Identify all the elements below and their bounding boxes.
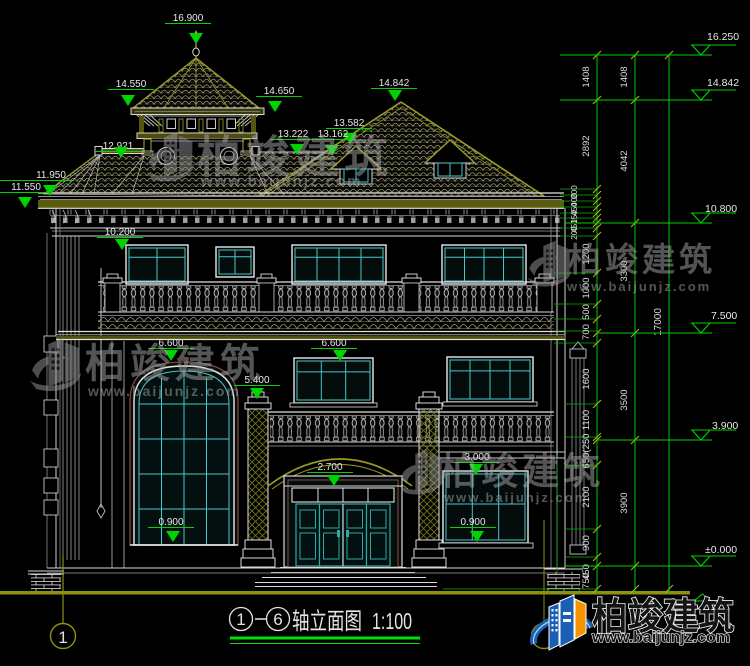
svg-text:2892: 2892 [581,135,592,156]
svg-text:www.baijunjz.com: www.baijunjz.com [443,490,588,505]
svg-text:14.842: 14.842 [707,77,739,89]
svg-text:7.500: 7.500 [711,310,737,322]
svg-text:1100: 1100 [581,410,592,430]
svg-text:14.842: 14.842 [379,78,410,89]
svg-text:11.550: 11.550 [11,182,41,193]
svg-text:1: 1 [236,610,245,629]
svg-text:10.200: 10.200 [105,227,136,238]
svg-text:轴立面图: 轴立面图 [292,608,362,634]
svg-text:www.baijunjz.com: www.baijunjz.com [591,630,730,646]
svg-text:17000: 17000 [653,308,664,336]
svg-text:3900: 3900 [619,492,630,513]
svg-text:www.baijunjz.com: www.baijunjz.com [566,279,711,294]
svg-text:www.baijunjz.com: www.baijunjz.com [87,383,241,399]
svg-text:www.baijunjz.com: www.baijunjz.com [200,173,362,190]
svg-text:11.950: 11.950 [36,170,66,181]
svg-text:900: 900 [581,535,592,551]
svg-text:0.900: 0.900 [460,517,485,528]
svg-text:6.600: 6.600 [321,338,346,349]
svg-text:0.900: 0.900 [158,517,183,528]
svg-text:2.700: 2.700 [317,462,342,473]
svg-text:1: 1 [58,628,67,647]
svg-text:4042: 4042 [619,150,630,171]
svg-text:3500: 3500 [619,389,630,410]
svg-text:16.900: 16.900 [173,13,204,24]
svg-text:6: 6 [273,610,282,629]
svg-text:柏竣建筑: 柏竣建筑 [568,241,716,278]
svg-text:±0.000: ±0.000 [705,544,737,556]
svg-text:1408: 1408 [581,66,592,87]
svg-text:13.582: 13.582 [334,118,365,129]
svg-text:1:100: 1:100 [372,608,412,634]
svg-text:750: 750 [581,573,592,589]
svg-text:柏竣建筑: 柏竣建筑 [440,450,604,492]
svg-text:1600: 1600 [581,368,592,389]
svg-text:14.550: 14.550 [116,79,147,90]
svg-text:16.250: 16.250 [707,31,739,43]
svg-text:500: 500 [581,304,592,320]
svg-text:柏竣建筑: 柏竣建筑 [85,342,265,386]
svg-text:700: 700 [581,324,592,340]
svg-text:200: 200 [570,226,579,240]
svg-text:14.650: 14.650 [264,86,295,97]
svg-text:1408: 1408 [619,66,630,87]
